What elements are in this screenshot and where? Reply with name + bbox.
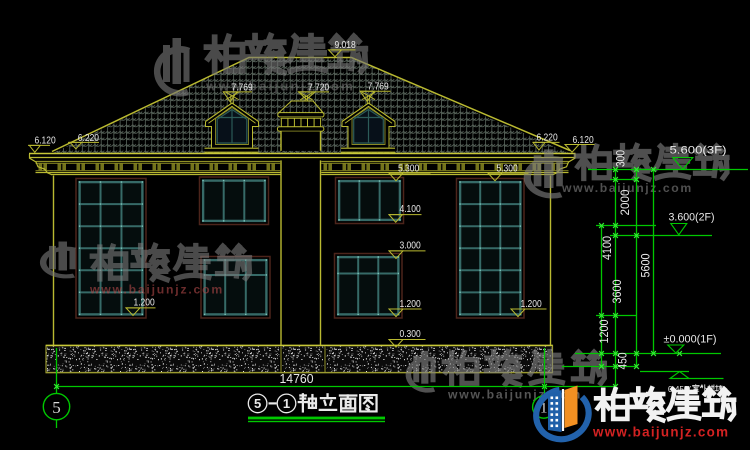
svg-text:5: 5	[52, 398, 61, 417]
svg-text:1200: 1200	[599, 320, 611, 344]
svg-text:3.600(2F): 3.600(2F)	[669, 212, 715, 224]
svg-text:www.baijunjz.com: www.baijunjz.com	[447, 388, 582, 402]
svg-text:5.600(3F): 5.600(3F)	[670, 145, 727, 157]
svg-text:6.220: 6.220	[537, 133, 558, 144]
svg-text:www.baijunjz.com: www.baijunjz.com	[89, 283, 224, 297]
svg-text:4100: 4100	[602, 236, 614, 260]
svg-text:14760: 14760	[280, 372, 314, 386]
svg-text:450: 450	[618, 353, 630, 370]
svg-text:±0.000(1F): ±0.000(1F)	[664, 334, 717, 346]
svg-text:1: 1	[283, 396, 290, 411]
svg-text:1.200: 1.200	[521, 299, 542, 310]
svg-text:3.000: 3.000	[400, 241, 421, 252]
svg-text:0.300: 0.300	[400, 329, 421, 340]
svg-text:1.200: 1.200	[134, 298, 155, 309]
svg-text:4.100: 4.100	[400, 204, 421, 215]
svg-text:300: 300	[616, 150, 628, 167]
svg-text:5: 5	[254, 396, 261, 411]
svg-text:3600: 3600	[612, 280, 624, 304]
svg-text:2000: 2000	[620, 190, 632, 216]
svg-text:9.018: 9.018	[335, 40, 356, 51]
svg-text:www.baijunjz.com: www.baijunjz.com	[592, 425, 729, 440]
svg-text:6.120: 6.120	[35, 136, 56, 147]
svg-text:www.baijunjz.com: www.baijunjz.com	[205, 79, 355, 94]
svg-text:1.200: 1.200	[400, 299, 421, 310]
svg-text:5600: 5600	[641, 254, 653, 278]
